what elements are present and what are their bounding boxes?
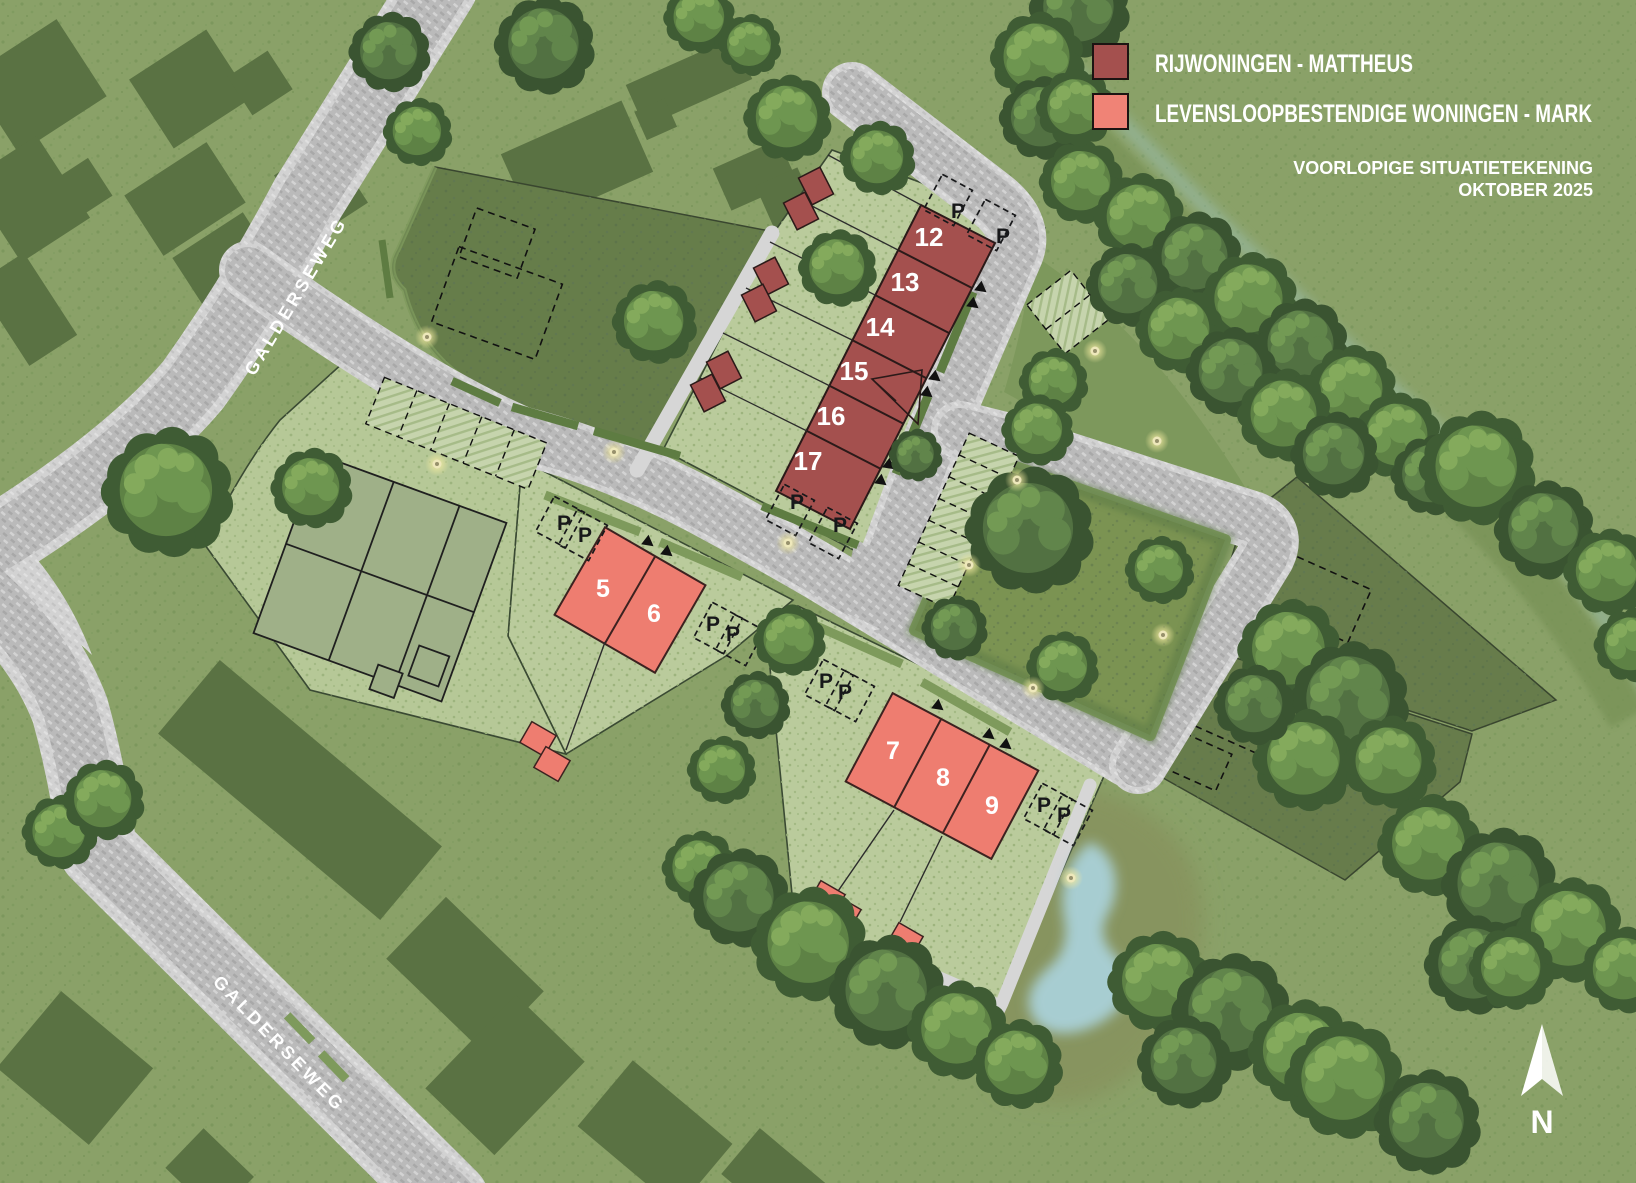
svg-text:P: P (996, 225, 1010, 248)
svg-text:14: 14 (866, 312, 895, 342)
svg-text:P: P (1057, 804, 1071, 827)
svg-text:6: 6 (647, 600, 661, 628)
svg-text:P: P (557, 512, 571, 535)
svg-text:RIJWONINGEN - MATTHEUS: RIJWONINGEN - MATTHEUS (1155, 50, 1413, 78)
svg-text:8: 8 (936, 764, 950, 792)
svg-text:P: P (1037, 794, 1051, 817)
svg-text:N: N (1530, 1104, 1553, 1140)
svg-text:9: 9 (985, 792, 999, 820)
svg-text:16: 16 (817, 401, 846, 431)
svg-text:VOORLOPIGE SITUATIETEKENING: VOORLOPIGE SITUATIETEKENING (1293, 158, 1593, 178)
svg-text:P: P (578, 524, 592, 547)
svg-text:P: P (833, 514, 847, 537)
svg-text:7: 7 (886, 737, 900, 765)
svg-text:P: P (951, 200, 965, 223)
svg-text:5: 5 (596, 575, 610, 603)
svg-text:17: 17 (794, 446, 823, 476)
svg-text:LEVENSLOOPBESTENDIGE WONINGEN: LEVENSLOOPBESTENDIGE WONINGEN - MARK (1155, 100, 1592, 128)
svg-text:P: P (819, 670, 833, 693)
svg-text:OKTOBER 2025: OKTOBER 2025 (1458, 180, 1593, 200)
svg-text:P: P (790, 491, 804, 514)
svg-text:P: P (726, 623, 740, 646)
svg-text:P: P (838, 681, 852, 704)
svg-text:P: P (706, 613, 720, 636)
svg-text:15: 15 (840, 356, 869, 386)
svg-text:13: 13 (891, 267, 920, 297)
svg-text:12: 12 (915, 222, 944, 252)
